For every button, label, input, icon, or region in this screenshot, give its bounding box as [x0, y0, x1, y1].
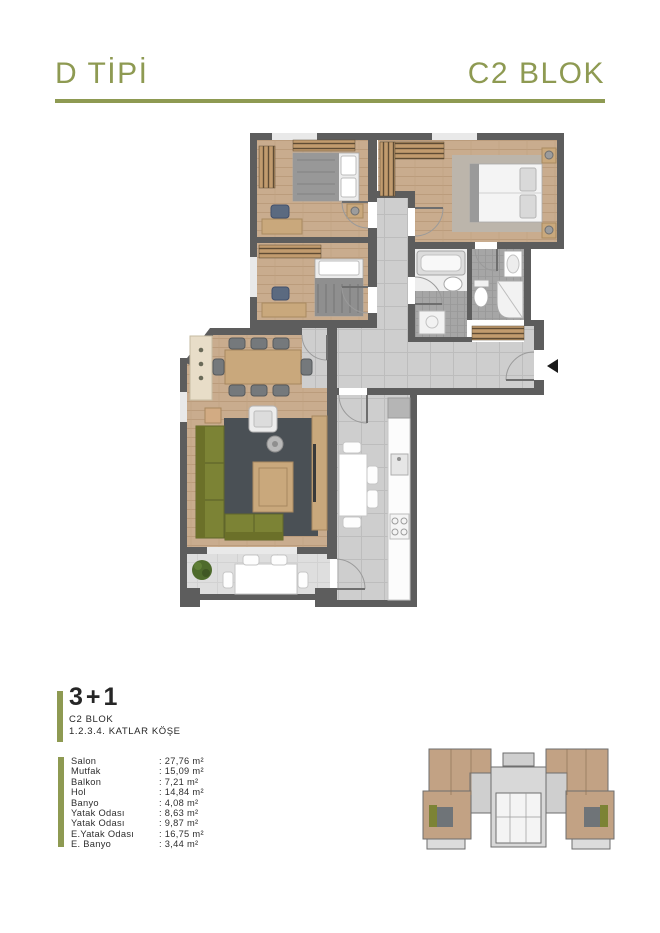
chair [367, 490, 378, 508]
pillow [319, 261, 359, 275]
area-row: Balkon : 7,21 m² [71, 777, 231, 787]
pillow [341, 178, 356, 197]
decor-dot [199, 362, 204, 367]
key-plan [415, 745, 622, 853]
chair [367, 466, 378, 484]
unit-floors-label: 1.2.3.4. KATLAR KÖŞE [69, 726, 181, 737]
area-row: Mutfak : 15,09 m² [71, 766, 231, 776]
toilet-tank [474, 280, 489, 287]
sideboard [190, 336, 212, 400]
key-plan-left-corridor [470, 773, 491, 813]
block-title: C2 BLOK [468, 57, 605, 91]
washer [419, 311, 445, 334]
area-table: Salon : 27,76 m² Mutfak : 15,09 m² Balko… [71, 756, 231, 850]
decor-dot [199, 348, 204, 353]
unit-block-label: C2 BLOK [69, 714, 113, 725]
living-room [190, 336, 327, 540]
plan-type-title: D TİPİ [55, 57, 148, 91]
room-label: Mutfak [71, 766, 159, 776]
room-area: : 3,44 m² [159, 839, 231, 849]
room-label: Balkon [71, 777, 159, 787]
pillow [520, 168, 536, 191]
key-plan-left-rug [435, 807, 453, 827]
hall-floor-ext [302, 328, 377, 388]
room-area: : 16,75 m² [159, 829, 231, 839]
room-area: : 14,84 m² [159, 787, 231, 797]
room-label: Yatak Odası [71, 818, 159, 828]
floor-plan [177, 122, 573, 608]
lamp [545, 151, 553, 159]
unit-room-count: 3+1 [69, 683, 120, 712]
armchair-cushion [254, 411, 272, 427]
wardrobe [259, 146, 275, 188]
room-area: : 27,76 m² [159, 756, 231, 766]
pillow [341, 156, 356, 175]
area-row: Hol : 14,84 m² [71, 787, 231, 797]
sofa-l [196, 426, 224, 538]
chair [223, 572, 233, 588]
plant-leaf [194, 562, 202, 570]
pillow [520, 195, 536, 218]
balcony-table [235, 564, 297, 594]
hall-cabinet [472, 326, 524, 340]
chair [343, 517, 361, 528]
bathtub-inner [421, 255, 461, 271]
room-label: Banyo [71, 798, 159, 808]
room-label: E.Yatak Odası [71, 829, 159, 839]
key-plan-left-balcony [427, 839, 465, 849]
room-area: : 15,09 m² [159, 766, 231, 776]
plant [192, 560, 212, 580]
key-plan-right-balcony [572, 839, 610, 849]
lamp [545, 226, 553, 234]
chair [298, 572, 308, 588]
stove [390, 514, 409, 539]
dining-table [225, 350, 301, 384]
desk-chair [272, 287, 289, 300]
area-row: Banyo : 4,08 m² [71, 798, 231, 808]
faucet [397, 457, 401, 461]
key-plan-core-rooms [496, 793, 541, 843]
sink-basin [507, 255, 519, 273]
room-label: E. Banyo [71, 839, 159, 849]
room-label: Salon [71, 756, 159, 766]
room-label: Yatak Odası [71, 808, 159, 818]
area-row: Yatak Odası : 9,87 m² [71, 818, 231, 828]
kitchen-table [339, 454, 367, 516]
side-table [205, 408, 221, 423]
chair [271, 555, 287, 565]
entrance-arrow-icon [547, 359, 558, 373]
sink [444, 277, 462, 291]
bed-headboard [470, 164, 479, 222]
room-area: : 4,08 m² [159, 798, 231, 808]
tv [313, 444, 316, 502]
chair [243, 555, 259, 565]
key-plan-right-rug [584, 807, 602, 827]
room-area: : 8,63 m² [159, 808, 231, 818]
plant-leaf [202, 569, 210, 577]
desk [262, 303, 306, 317]
area-row: E.Yatak Odası : 16,75 m² [71, 829, 231, 839]
key-plan-right-corridor [546, 773, 567, 813]
key-plan-left-sofa [429, 805, 437, 827]
unit-accent-bar [57, 691, 63, 742]
wardrobe [293, 140, 355, 151]
decor-dot [199, 376, 204, 381]
area-row: E. Banyo : 3,44 m² [71, 839, 231, 849]
room-area: : 7,21 m² [159, 777, 231, 787]
key-plan-top-core [503, 753, 534, 766]
area-accent-bar [58, 757, 64, 847]
header-rule [55, 99, 605, 103]
room-area: : 9,87 m² [159, 818, 231, 828]
room-label: Hol [71, 787, 159, 797]
area-row: Yatak Odası : 8,63 m² [71, 808, 231, 818]
toilet [474, 287, 488, 307]
lamp [351, 207, 359, 215]
kitchen-counter [388, 398, 410, 600]
wardrobe [380, 142, 395, 196]
key-plan-right-sofa [600, 805, 608, 827]
fridge [388, 398, 410, 418]
side-table-center [272, 441, 278, 447]
desk [262, 219, 302, 234]
sofa-loveseat [225, 514, 283, 540]
wardrobe [259, 245, 321, 258]
area-row: Salon : 27,76 m² [71, 756, 231, 766]
brochure-page: D TİPİ C2 BLOK [0, 0, 660, 933]
chair [343, 442, 361, 453]
desk-chair [271, 205, 289, 218]
